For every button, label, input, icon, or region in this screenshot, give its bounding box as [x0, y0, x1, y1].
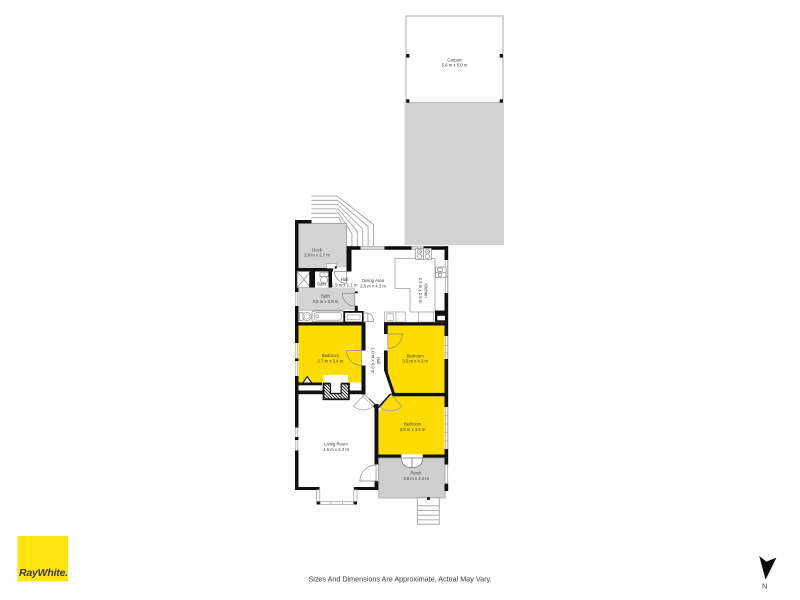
svg-text:3.8 m x 2.4 m: 3.8 m x 2.4 m — [403, 476, 429, 481]
svg-text:Deck: Deck — [312, 247, 323, 252]
svg-text:2.6 m x 4.3 m: 2.6 m x 4.3 m — [360, 283, 386, 288]
svg-text:Bedroom: Bedroom — [404, 421, 422, 426]
svg-text:5.6 m x 5.0 m: 5.6 m x 5.0 m — [442, 63, 468, 68]
svg-text:2.7 m x 3.4 m: 2.7 m x 3.4 m — [318, 358, 344, 363]
svg-text:3.5 m x 4.2 m: 3.5 m x 4.2 m — [402, 359, 428, 364]
svg-text:Kitchen: Kitchen — [424, 283, 429, 298]
svg-text:Porch: Porch — [410, 471, 422, 476]
svg-text:Dining Area: Dining Area — [362, 278, 385, 283]
svg-text:3.9 m x 3.5 m: 3.9 m x 3.5 m — [400, 427, 426, 432]
svg-text:Bath: Bath — [321, 294, 330, 299]
svg-text:1.0 m x 4.9 m: 1.0 m x 4.9 m — [370, 348, 375, 374]
svg-text:Bath: Bath — [317, 282, 326, 287]
svg-text:N: N — [762, 583, 767, 590]
svg-text:Sizes And Dimensions Are Appro: Sizes And Dimensions Are Approximate, Ac… — [308, 575, 491, 584]
svg-text:4.6 m x 6.3 m: 4.6 m x 6.3 m — [323, 447, 349, 452]
svg-text:RayWhite.: RayWhite. — [19, 567, 68, 579]
svg-text:2.9 m x 2.7 m: 2.9 m x 2.7 m — [304, 253, 330, 258]
svg-text:Bedroom: Bedroom — [407, 353, 425, 358]
svg-text:1.9 m x 1.1 m: 1.9 m x 1.1 m — [332, 282, 358, 287]
svg-text:2.9 m x 2.5 m: 2.9 m x 2.5 m — [418, 278, 423, 304]
svg-text:3.5 m x 2.9 m: 3.5 m x 2.9 m — [313, 299, 339, 304]
svg-text:Hall: Hall — [376, 357, 381, 364]
svg-text:Bedroom: Bedroom — [322, 353, 340, 358]
svg-text:Living Room: Living Room — [324, 441, 348, 446]
